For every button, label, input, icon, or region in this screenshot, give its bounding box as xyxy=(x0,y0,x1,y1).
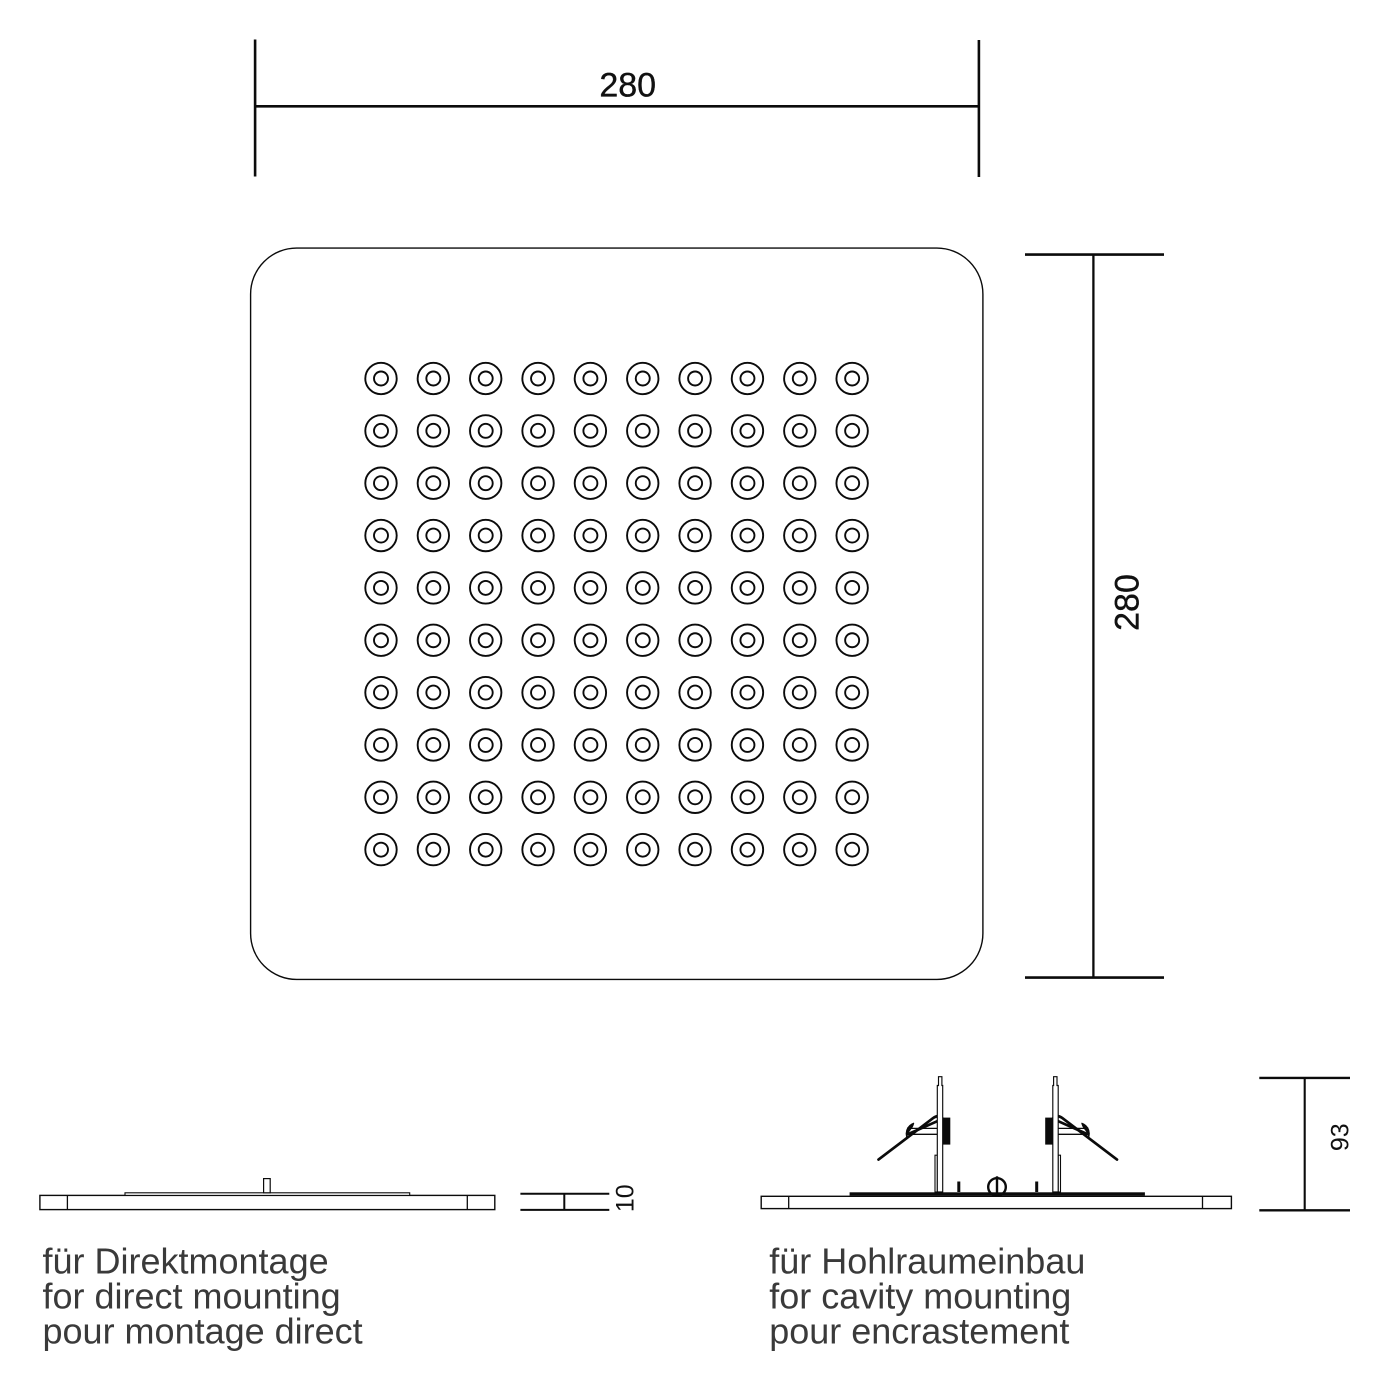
svg-text:280: 280 xyxy=(1109,574,1147,631)
svg-text:pour encrastement: pour encrastement xyxy=(769,1311,1069,1352)
svg-text:280: 280 xyxy=(599,67,656,105)
svg-text:pour montage direct: pour montage direct xyxy=(43,1311,363,1352)
svg-text:10: 10 xyxy=(612,1184,640,1212)
svg-text:93: 93 xyxy=(1327,1123,1355,1151)
